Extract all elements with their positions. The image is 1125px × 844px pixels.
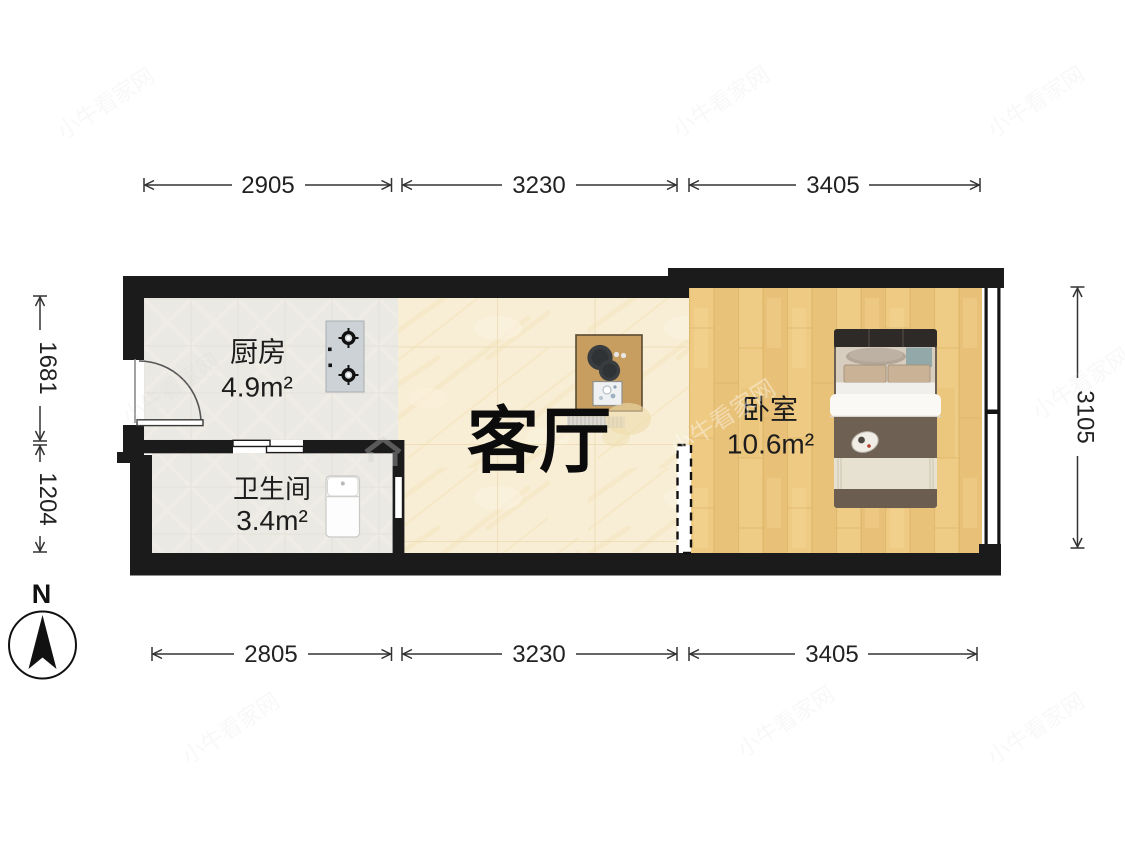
svg-text:3405: 3405	[806, 172, 859, 199]
svg-text:3230: 3230	[512, 172, 565, 199]
svg-text:1204: 1204	[34, 472, 61, 525]
svg-text:3405: 3405	[805, 641, 858, 668]
svg-text:1681: 1681	[34, 341, 61, 394]
svg-text:厨房: 厨房	[230, 337, 286, 368]
svg-text:3.4m²: 3.4m²	[236, 505, 308, 536]
svg-text:卫生间: 卫生间	[233, 474, 311, 504]
svg-text:2905: 2905	[241, 172, 294, 199]
svg-text:N: N	[32, 579, 52, 609]
svg-text:2805: 2805	[244, 641, 297, 668]
svg-text:客厅: 客厅	[467, 402, 611, 482]
svg-text:4.9m²: 4.9m²	[221, 372, 293, 403]
svg-text:10.6m²: 10.6m²	[727, 429, 814, 460]
svg-text:3230: 3230	[512, 641, 565, 668]
